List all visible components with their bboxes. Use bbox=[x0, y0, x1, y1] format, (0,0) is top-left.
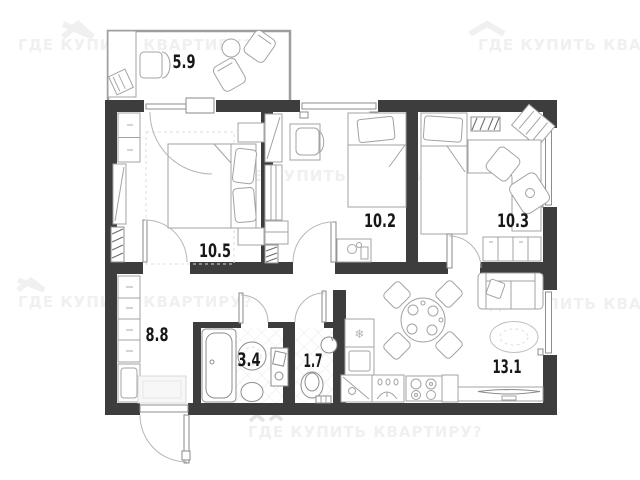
wardrobe bbox=[118, 113, 140, 162]
room-bedroom-2: 10.2 bbox=[265, 113, 406, 263]
area-label-kitchen-living: 13.1 bbox=[493, 356, 522, 378]
nightstand bbox=[238, 228, 264, 245]
kitchen-counter bbox=[442, 375, 458, 402]
tv-stand bbox=[458, 387, 543, 401]
wardrobe bbox=[265, 165, 282, 220]
nightstand bbox=[238, 123, 264, 142]
area-label-bathroom: 3.4 bbox=[238, 349, 261, 371]
double-bed bbox=[168, 144, 257, 228]
balcony-table bbox=[222, 39, 240, 57]
wall-shelf bbox=[265, 114, 282, 162]
dresser bbox=[337, 239, 371, 262]
single-bed bbox=[348, 113, 406, 207]
area-label-bedroom-2: 10.2 bbox=[364, 210, 396, 232]
shoe-bench bbox=[118, 364, 140, 402]
snowflake-icon: ❄ bbox=[354, 327, 364, 341]
balcony-chair bbox=[242, 28, 277, 64]
door-toilet bbox=[295, 291, 326, 322]
corner-sink bbox=[321, 337, 337, 353]
floor-plan-canvas: ГДЕ КУПИТЬ КВАРТИРУ? ГДЕ КУПИТЬ КВАРТИРУ… bbox=[0, 0, 640, 480]
area-label-toilet: 1.7 bbox=[304, 350, 323, 372]
room-bedroom-1: 10.5 bbox=[111, 112, 264, 264]
area-label-hallway: 8.8 bbox=[146, 324, 169, 346]
radiator bbox=[265, 245, 278, 263]
room-kitchen-living: ❄ bbox=[341, 273, 543, 402]
radiator bbox=[111, 227, 124, 262]
area-label-bedroom-3: 10.3 bbox=[497, 210, 529, 232]
balcony-window bbox=[146, 104, 186, 109]
bathtub bbox=[202, 329, 236, 402]
cabinet bbox=[265, 221, 288, 244]
door-bedroom-2 bbox=[293, 222, 336, 262]
dresser bbox=[483, 237, 541, 261]
watermark-text: ГДЕ КУПИТЬ КВАРТИРУ? bbox=[248, 423, 483, 441]
stove bbox=[406, 376, 442, 401]
floor-grate bbox=[316, 396, 331, 403]
entrance-door bbox=[140, 405, 190, 463]
watermark-roof-icon bbox=[470, 24, 504, 34]
hall-closet bbox=[118, 276, 140, 362]
balcony-cabinet bbox=[108, 31, 136, 97]
mirror bbox=[113, 164, 126, 224]
drying-unit bbox=[372, 375, 404, 402]
dining-table bbox=[382, 279, 464, 361]
radiator bbox=[471, 117, 500, 131]
sofa bbox=[478, 273, 543, 309]
balcony-chair bbox=[140, 52, 170, 78]
sink-bowl bbox=[241, 383, 263, 402]
washing-machine bbox=[271, 348, 288, 386]
single-bed bbox=[421, 113, 467, 234]
room-toilet: 1.7 bbox=[295, 291, 337, 403]
toilet bbox=[301, 372, 323, 398]
refrigerator: ❄ bbox=[345, 319, 374, 375]
door-mat bbox=[138, 376, 186, 403]
door-handle bbox=[182, 451, 190, 460]
balcony-door-leaf bbox=[186, 98, 214, 113]
balcony-chair bbox=[212, 56, 248, 93]
watermark-roof-icon bbox=[250, 415, 282, 421]
rug bbox=[490, 322, 538, 353]
area-label-bedroom-1: 10.5 bbox=[199, 240, 231, 262]
corner-sink-unit bbox=[341, 375, 372, 402]
watermark-text: ГДЕ КУПИТЬ КВАРТИРУ? bbox=[478, 36, 640, 54]
room-bedroom-3: 10.3 bbox=[421, 104, 555, 268]
watermark-logo-icon bbox=[18, 280, 44, 290]
area-label-balcony: 5.9 bbox=[173, 51, 196, 73]
door-bathroom bbox=[239, 293, 268, 323]
door-bedroom-3 bbox=[447, 234, 481, 268]
